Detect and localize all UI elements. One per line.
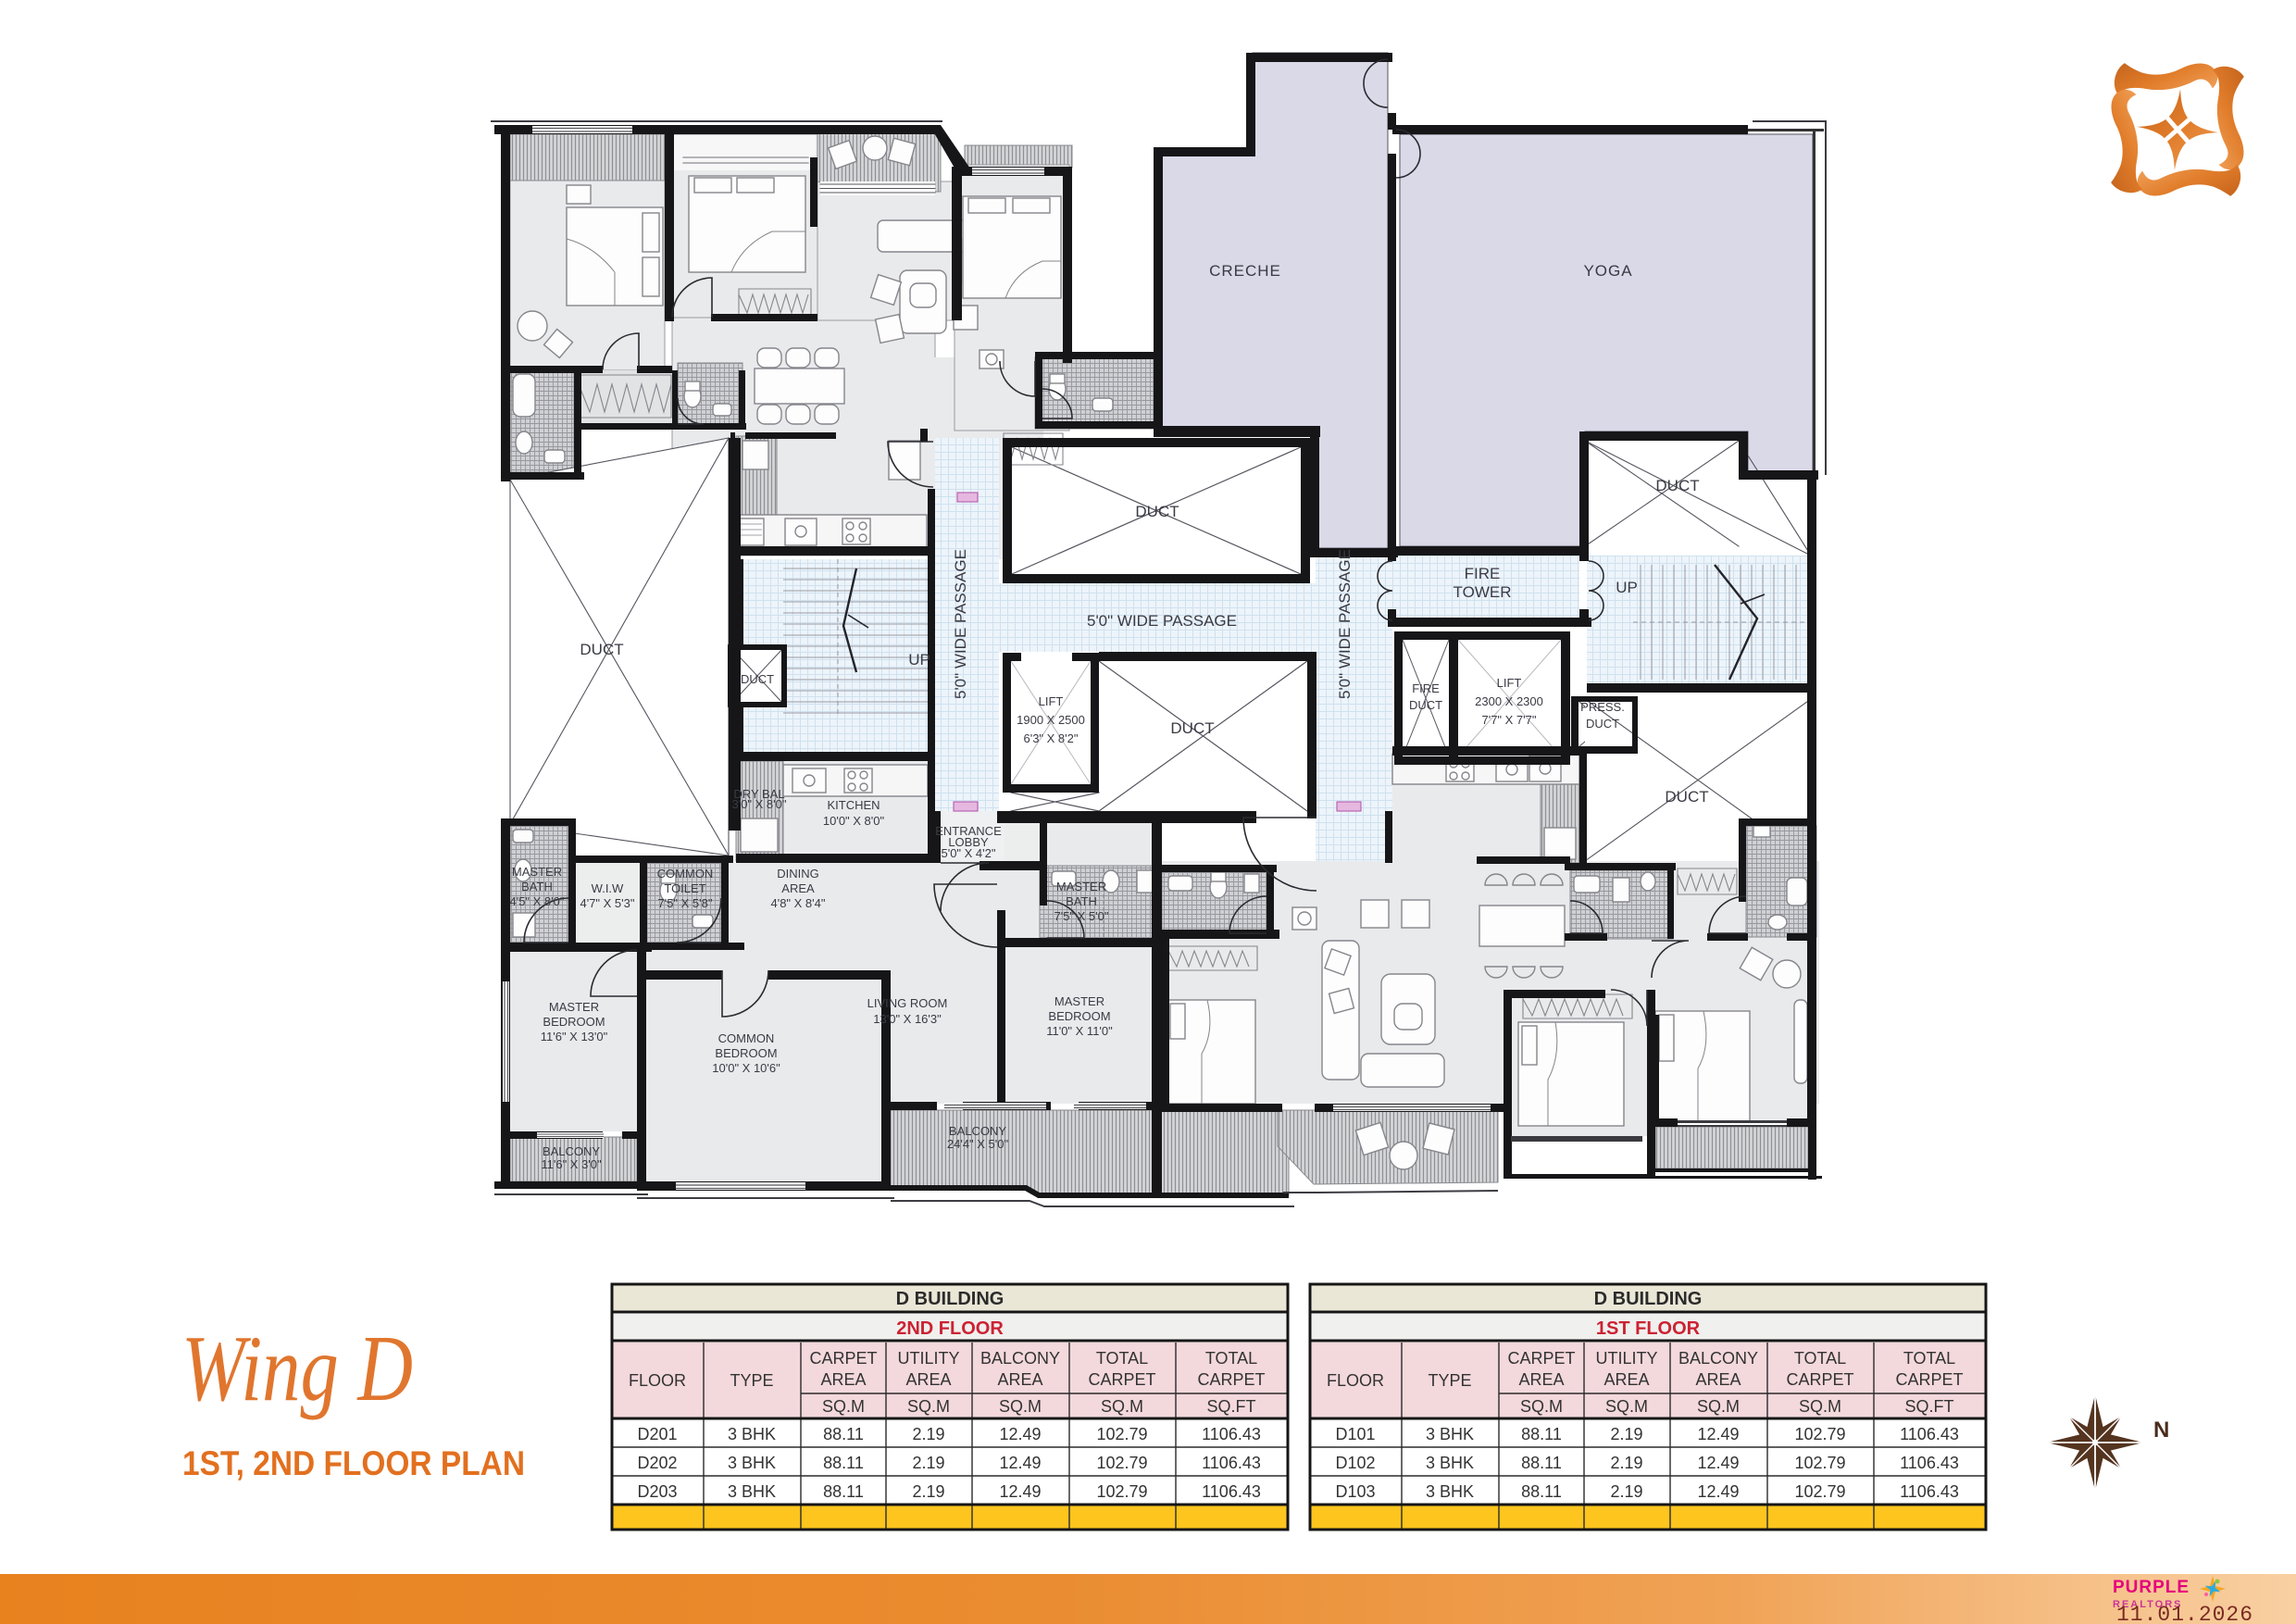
svg-text:TOWER: TOWER [1454, 583, 1512, 601]
svg-text:1900 X 2500: 1900 X 2500 [1017, 713, 1085, 727]
svg-text:6'3" X 8'2": 6'3" X 8'2" [1023, 731, 1078, 745]
svg-text:DUCT: DUCT [1135, 503, 1179, 520]
svg-text:D201: D201 [637, 1425, 677, 1443]
svg-text:D BUILDING: D BUILDING [896, 1289, 1004, 1309]
svg-text:7'5" X 5'8": 7'5" X 5'8" [657, 896, 712, 910]
svg-text:4'7" X 5'3": 4'7" X 5'3" [580, 896, 634, 910]
svg-text:5'0" WIDE PASSAGE: 5'0" WIDE PASSAGE [1087, 612, 1237, 630]
svg-text:FIRE: FIRE [1412, 681, 1440, 695]
svg-text:AREA: AREA [1603, 1370, 1649, 1389]
svg-text:FLOOR: FLOOR [629, 1371, 686, 1390]
svg-text:SQ.FT: SQ.FT [1207, 1397, 1256, 1416]
svg-text:AREA: AREA [820, 1370, 866, 1389]
svg-text:TOTAL: TOTAL [1205, 1349, 1257, 1368]
svg-text:2ND FLOOR: 2ND FLOOR [896, 1318, 1004, 1339]
svg-text:3 BHK: 3 BHK [728, 1454, 776, 1472]
svg-text:TOTAL: TOTAL [1794, 1349, 1846, 1368]
svg-text:SQ.M: SQ.M [1605, 1397, 1648, 1416]
svg-text:7'5" X 5'0": 7'5" X 5'0" [1054, 909, 1108, 923]
svg-text:CARPET: CARPET [1786, 1370, 1853, 1389]
svg-text:MASTER: MASTER [1056, 880, 1106, 893]
svg-text:D101: D101 [1335, 1425, 1375, 1443]
svg-text:D BUILDING: D BUILDING [1594, 1289, 1703, 1309]
svg-text:1106.43: 1106.43 [1900, 1482, 1959, 1501]
svg-text:PRESS.: PRESS. [1580, 700, 1625, 714]
svg-text:DINING: DINING [777, 867, 819, 881]
svg-text:AREA: AREA [781, 881, 815, 895]
svg-text:SQ.M: SQ.M [1697, 1397, 1740, 1416]
svg-text:UTILITY: UTILITY [1595, 1349, 1657, 1368]
svg-text:LIFT: LIFT [1497, 676, 1522, 690]
svg-text:2300 X 2300: 2300 X 2300 [1475, 694, 1543, 708]
svg-text:SQ.M: SQ.M [907, 1397, 950, 1416]
svg-text:YOGA: YOGA [1583, 262, 1632, 280]
svg-text:12.49: 12.49 [999, 1454, 1041, 1472]
svg-text:UTILITY: UTILITY [897, 1349, 959, 1368]
svg-text:DUCT: DUCT [1586, 717, 1619, 731]
svg-text:DUCT: DUCT [1170, 719, 1214, 737]
svg-text:COMMON: COMMON [718, 1031, 775, 1045]
svg-text:CRECHE: CRECHE [1209, 262, 1281, 280]
svg-text:3 BHK: 3 BHK [1426, 1482, 1474, 1501]
svg-text:11.01.2026: 11.01.2026 [2116, 1603, 2253, 1624]
svg-text:88.11: 88.11 [823, 1482, 864, 1501]
svg-text:DUCT: DUCT [1655, 477, 1699, 494]
svg-text:AREA: AREA [997, 1370, 1042, 1389]
svg-text:TOTAL: TOTAL [1903, 1349, 1955, 1368]
svg-text:2.19: 2.19 [912, 1454, 944, 1472]
svg-text:D203: D203 [637, 1482, 677, 1501]
svg-text:1ST, 2ND FLOOR PLAN: 1ST, 2ND FLOOR PLAN [182, 1444, 525, 1482]
svg-text:TYPE: TYPE [1428, 1371, 1471, 1390]
svg-text:SQ.M: SQ.M [822, 1397, 865, 1416]
svg-text:MASTER: MASTER [1054, 994, 1104, 1008]
svg-text:11'6" X 13'0": 11'6" X 13'0" [541, 1030, 608, 1043]
svg-text:DUCT: DUCT [1409, 698, 1442, 712]
svg-text:BALCONY: BALCONY [949, 1124, 1006, 1138]
svg-text:102.79: 102.79 [1794, 1425, 1845, 1443]
svg-text:10'0" X 10'6": 10'0" X 10'6" [712, 1061, 780, 1075]
svg-text:BALCONY: BALCONY [980, 1349, 1060, 1368]
svg-text:4'5" X 8'0": 4'5" X 8'0" [509, 894, 564, 908]
svg-text:Wing D: Wing D [181, 1317, 413, 1421]
svg-text:KITCHEN: KITCHEN [827, 798, 880, 812]
svg-text:BALCONY: BALCONY [543, 1144, 600, 1158]
svg-text:D202: D202 [637, 1454, 677, 1472]
svg-text:3 BHK: 3 BHK [1426, 1425, 1474, 1443]
svg-text:D102: D102 [1335, 1454, 1375, 1472]
svg-text:12.49: 12.49 [1697, 1425, 1739, 1443]
svg-text:88.11: 88.11 [1521, 1425, 1562, 1443]
svg-text:4'8" X 8'4": 4'8" X 8'4" [770, 896, 825, 910]
svg-text:TOTAL: TOTAL [1096, 1349, 1148, 1368]
svg-text:AREA: AREA [905, 1370, 951, 1389]
svg-text:W.I.W: W.I.W [592, 881, 624, 895]
svg-text:3 BHK: 3 BHK [728, 1482, 776, 1501]
svg-text:UP: UP [1616, 579, 1638, 596]
svg-text:CARPET: CARPET [1895, 1370, 1963, 1389]
svg-text:MASTER: MASTER [512, 865, 562, 879]
svg-text:TYPE: TYPE [730, 1371, 773, 1390]
svg-text:3'0" X 8'0": 3'0" X 8'0" [731, 797, 786, 811]
svg-text:AREA: AREA [1695, 1370, 1741, 1389]
svg-text:102.79: 102.79 [1096, 1482, 1147, 1501]
svg-text:88.11: 88.11 [823, 1454, 864, 1472]
svg-text:12.49: 12.49 [1697, 1482, 1739, 1501]
svg-text:BEDROOM: BEDROOM [1048, 1009, 1110, 1023]
svg-text:SQ.M: SQ.M [1520, 1397, 1563, 1416]
svg-text:TOILET: TOILET [664, 881, 705, 895]
svg-text:2.19: 2.19 [1610, 1482, 1642, 1501]
svg-text:24'4" X 5'0": 24'4" X 5'0" [947, 1137, 1009, 1151]
svg-text:SQ.M: SQ.M [1799, 1397, 1841, 1416]
svg-text:DUCT: DUCT [1665, 788, 1708, 806]
svg-text:5'0" WIDE PASSAGE: 5'0" WIDE PASSAGE [1336, 549, 1354, 699]
svg-text:88.11: 88.11 [823, 1425, 864, 1443]
svg-text:N: N [2153, 1418, 2169, 1443]
svg-text:2.19: 2.19 [912, 1482, 944, 1501]
svg-text:1106.43: 1106.43 [1202, 1454, 1261, 1472]
svg-text:11'0" X 11'0": 11'0" X 11'0" [1046, 1024, 1113, 1038]
svg-text:LIFT: LIFT [1039, 694, 1064, 708]
svg-text:11'6" X 3'0": 11'6" X 3'0" [541, 1157, 602, 1171]
svg-text:88.11: 88.11 [1521, 1454, 1562, 1472]
svg-text:2.19: 2.19 [1610, 1425, 1642, 1443]
svg-text:DUCT: DUCT [741, 672, 774, 686]
svg-text:CARPET: CARPET [809, 1349, 877, 1368]
svg-text:3 BHK: 3 BHK [1426, 1454, 1474, 1472]
svg-text:2.19: 2.19 [912, 1425, 944, 1443]
svg-text:BALCONY: BALCONY [1678, 1349, 1758, 1368]
svg-text:2.19: 2.19 [1610, 1454, 1642, 1472]
svg-text:1106.43: 1106.43 [1900, 1425, 1959, 1443]
svg-text:BEDROOM: BEDROOM [715, 1046, 777, 1060]
svg-text:CARPET: CARPET [1088, 1370, 1155, 1389]
svg-text:D103: D103 [1335, 1482, 1375, 1501]
svg-text:COMMON: COMMON [657, 867, 714, 881]
svg-text:88.11: 88.11 [1521, 1482, 1562, 1501]
svg-text:CARPET: CARPET [1507, 1349, 1575, 1368]
svg-text:FIRE: FIRE [1465, 565, 1501, 582]
svg-text:SQ.M: SQ.M [999, 1397, 1042, 1416]
svg-text:MASTER: MASTER [549, 1000, 599, 1014]
svg-text:PURPLE: PURPLE [2113, 1578, 2190, 1597]
svg-text:102.79: 102.79 [1794, 1454, 1845, 1472]
svg-text:13'0" X 16'3": 13'0" X 16'3" [873, 1012, 942, 1026]
svg-text:SQ.FT: SQ.FT [1905, 1397, 1954, 1416]
svg-text:1106.43: 1106.43 [1202, 1425, 1261, 1443]
svg-text:12.49: 12.49 [999, 1425, 1041, 1443]
svg-text:102.79: 102.79 [1096, 1454, 1147, 1472]
svg-text:DUCT: DUCT [580, 641, 623, 658]
svg-text:BEDROOM: BEDROOM [543, 1015, 605, 1029]
svg-text:102.79: 102.79 [1096, 1425, 1147, 1443]
svg-text:10'0" X 8'0": 10'0" X 8'0" [823, 814, 885, 828]
svg-text:1106.43: 1106.43 [1202, 1482, 1261, 1501]
svg-text:LIVING ROOM: LIVING ROOM [867, 996, 948, 1010]
svg-text:5'0" WIDE PASSAGE: 5'0" WIDE PASSAGE [952, 549, 969, 699]
svg-text:12.49: 12.49 [1697, 1454, 1739, 1472]
svg-text:UP: UP [908, 651, 930, 668]
svg-text:BATH: BATH [521, 880, 553, 893]
svg-text:5'0" X 4'2": 5'0" X 4'2" [941, 846, 995, 860]
svg-text:SQ.M: SQ.M [1101, 1397, 1143, 1416]
svg-text:1106.43: 1106.43 [1900, 1454, 1959, 1472]
svg-text:AREA: AREA [1518, 1370, 1564, 1389]
svg-text:FLOOR: FLOOR [1327, 1371, 1384, 1390]
svg-text:1ST FLOOR: 1ST FLOOR [1596, 1318, 1701, 1339]
svg-text:7'7" X 7'7": 7'7" X 7'7" [1481, 713, 1536, 727]
svg-text:12.49: 12.49 [999, 1482, 1041, 1501]
svg-text:BATH: BATH [1066, 894, 1097, 908]
svg-text:102.79: 102.79 [1794, 1482, 1845, 1501]
svg-text:CARPET: CARPET [1197, 1370, 1265, 1389]
svg-text:3 BHK: 3 BHK [728, 1425, 776, 1443]
